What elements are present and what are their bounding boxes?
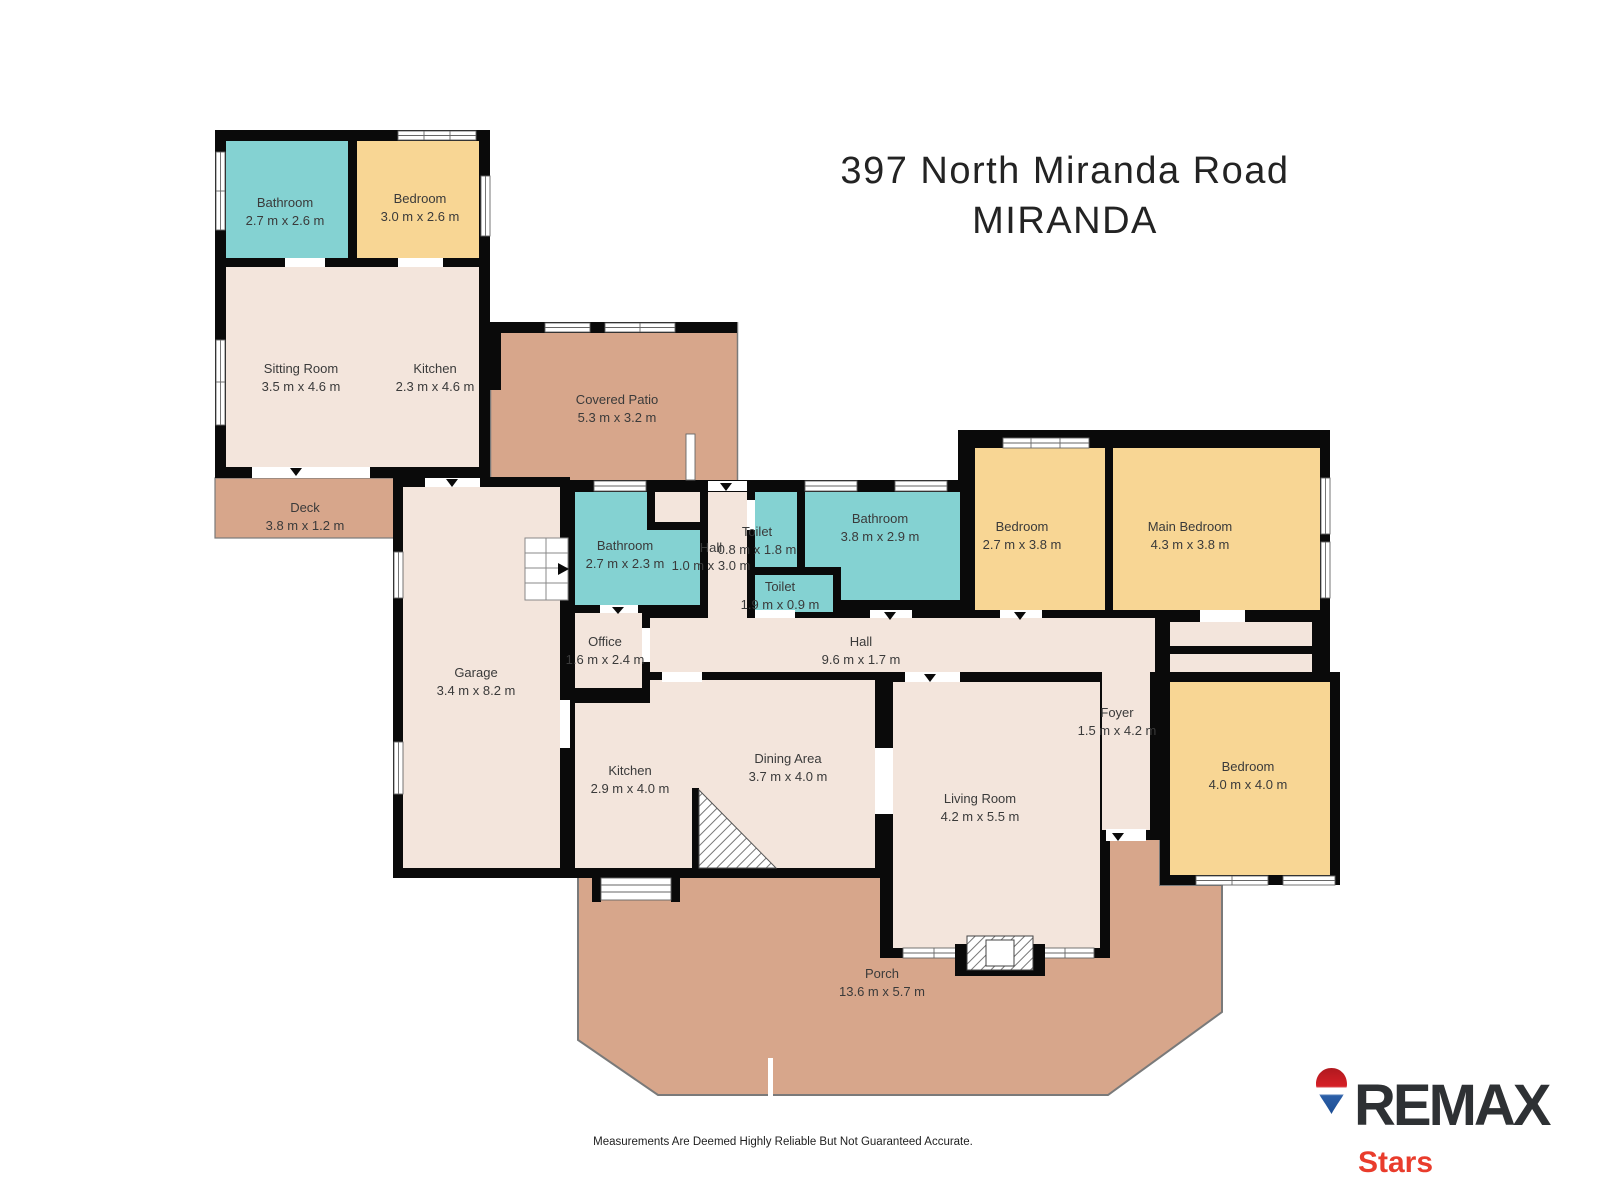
room-name: Deck xyxy=(266,499,345,517)
room-name: Bedroom xyxy=(381,190,460,208)
room-label-bedroom: Bedroom2.7 m x 3.8 m xyxy=(983,518,1062,554)
room-dims: 3.8 m x 1.2 m xyxy=(266,517,345,535)
measurement-disclaimer: Measurements Are Deemed Highly Reliable … xyxy=(593,1136,973,1148)
room-label-bathroom: Bathroom3.8 m x 2.9 m xyxy=(841,510,920,546)
property-suburb: MIRANDA xyxy=(840,196,1289,246)
room-label-dining-area: Dining Area3.7 m x 4.0 m xyxy=(749,750,828,786)
room-label-foyer: Foyer1.5 m x 4.2 m xyxy=(1078,704,1157,740)
room-name: Hall xyxy=(822,633,901,651)
room-dims: 3.4 m x 8.2 m xyxy=(437,682,516,700)
room-name: Office xyxy=(566,633,645,651)
room-name: Living Room xyxy=(941,790,1020,808)
remax-balloon-icon xyxy=(1316,1068,1348,1116)
room-dims: 9.6 m x 1.7 m xyxy=(822,651,901,669)
room-label-kitchen: Kitchen2.9 m x 4.0 m xyxy=(591,762,670,798)
room-dims: 0.8 m x 1.8 m xyxy=(718,541,797,559)
room-dims: 1.9 m x 0.9 m xyxy=(741,596,820,614)
room-dims: 3.7 m x 4.0 m xyxy=(749,768,828,786)
agency-logo: REMAX Stars xyxy=(1316,1064,1576,1184)
room-name: Bedroom xyxy=(983,518,1062,536)
room-name: Foyer xyxy=(1078,704,1157,722)
room-dims: 2.9 m x 4.0 m xyxy=(591,780,670,798)
room-name: Bedroom xyxy=(1209,758,1288,776)
room-label-bedroom: Bedroom3.0 m x 2.6 m xyxy=(381,190,460,226)
room-label-bathroom: Bathroom2.7 m x 2.3 m xyxy=(586,537,665,573)
room-label-living-room: Living Room4.2 m x 5.5 m xyxy=(941,790,1020,826)
property-address: 397 North Miranda Road xyxy=(840,146,1289,196)
room-dims: 13.6 m x 5.7 m xyxy=(839,983,925,1001)
room-name: Bathroom xyxy=(841,510,920,528)
room-label-toilet: Toilet1.9 m x 0.9 m xyxy=(741,578,820,614)
room-name: Toilet xyxy=(741,578,820,596)
room-dims: 4.3 m x 3.8 m xyxy=(1148,536,1233,554)
room-label-bathroom: Bathroom2.7 m x 2.6 m xyxy=(246,194,325,230)
room-label-toilet: Toilet0.8 m x 1.8 m xyxy=(718,523,797,559)
room-label-kitchen: Kitchen2.3 m x 4.6 m xyxy=(396,360,475,396)
room-name: Kitchen xyxy=(591,762,670,780)
room-label-deck: Deck3.8 m x 1.2 m xyxy=(266,499,345,535)
room-name: Main Bedroom xyxy=(1148,518,1233,536)
room-name: Kitchen xyxy=(396,360,475,378)
room-name: Dining Area xyxy=(749,750,828,768)
room-label-porch: Porch13.6 m x 5.7 m xyxy=(839,965,925,1001)
room-dims: 4.2 m x 5.5 m xyxy=(941,808,1020,826)
room-dims: 1.6 m x 2.4 m xyxy=(566,651,645,669)
room-name: Toilet xyxy=(718,523,797,541)
room-dims: 2.7 m x 2.3 m xyxy=(586,555,665,573)
fireplace xyxy=(955,936,1045,976)
remax-office-name: Stars xyxy=(1358,1146,1433,1180)
property-title: 397 North Miranda Road MIRANDA xyxy=(840,146,1289,246)
room-dims: 2.7 m x 2.6 m xyxy=(246,212,325,230)
room-name: Bathroom xyxy=(586,537,665,555)
room-label-garage: Garage3.4 m x 8.2 m xyxy=(437,664,516,700)
room-dims: 2.7 m x 3.8 m xyxy=(983,536,1062,554)
porch-step-gap xyxy=(768,1058,773,1097)
room-name: Porch xyxy=(839,965,925,983)
room-label-covered-patio: Covered Patio5.3 m x 3.2 m xyxy=(576,391,658,427)
room-label-main-bedroom: Main Bedroom4.3 m x 3.8 m xyxy=(1148,518,1233,554)
room-name: Bathroom xyxy=(246,194,325,212)
room-name: Garage xyxy=(437,664,516,682)
patio-pillar xyxy=(686,434,695,480)
room-label-hall: Hall9.6 m x 1.7 m xyxy=(822,633,901,669)
room-dims: 2.3 m x 4.6 m xyxy=(396,378,475,396)
staircase xyxy=(525,538,569,600)
room-label-office: Office1.6 m x 2.4 m xyxy=(566,633,645,669)
room-dims: 4.0 m x 4.0 m xyxy=(1209,776,1288,794)
floorplan-page: { "title": {"address": "397 North Mirand… xyxy=(0,0,1600,1200)
room-dims: 3.0 m x 2.6 m xyxy=(381,208,460,226)
room-dims: 3.8 m x 2.9 m xyxy=(841,528,920,546)
room-dims: 5.3 m x 3.2 m xyxy=(576,409,658,427)
room-label-bedroom: Bedroom4.0 m x 4.0 m xyxy=(1209,758,1288,794)
room-label-sitting-room: Sitting Room3.5 m x 4.6 m xyxy=(262,360,341,396)
room-name: Sitting Room xyxy=(262,360,341,378)
room-dims: 1.0 m x 3.0 m xyxy=(672,557,751,575)
remax-wordmark: REMAX xyxy=(1354,1072,1548,1139)
room-dims: 3.5 m x 4.6 m xyxy=(262,378,341,396)
room-dims: 1.5 m x 4.2 m xyxy=(1078,722,1157,740)
room-name: Covered Patio xyxy=(576,391,658,409)
